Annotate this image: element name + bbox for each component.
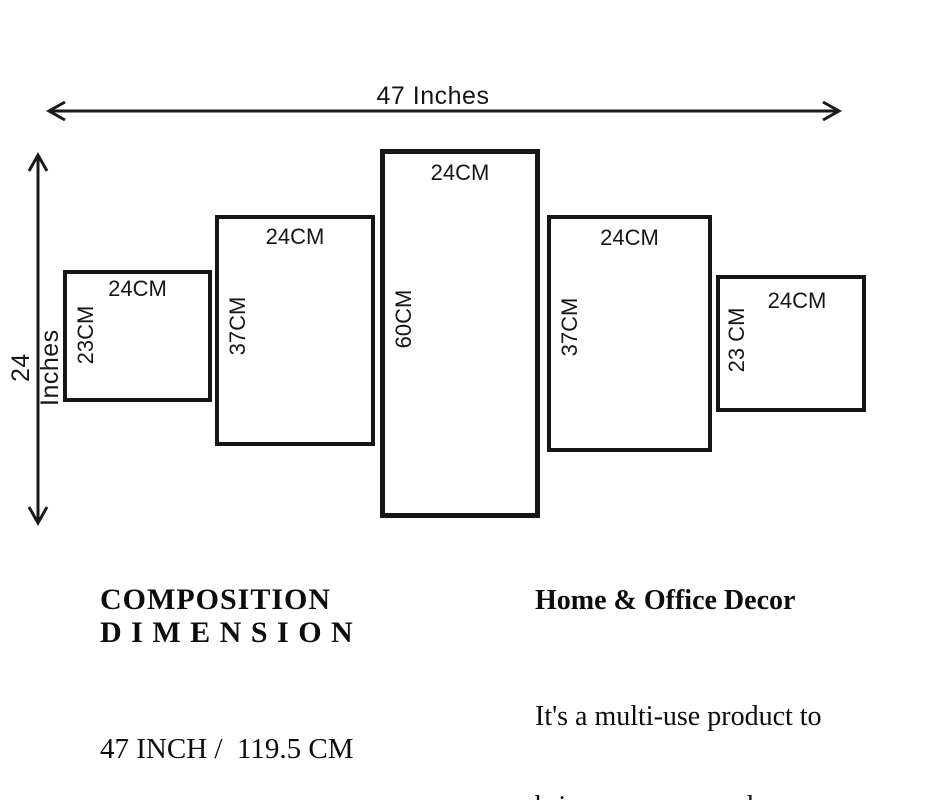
panel-4-width-label: 24CM xyxy=(551,225,708,251)
composition-spec-width: 47 INCH / 119.5 CM xyxy=(100,733,354,765)
product-dimension-diagram: 47 Inches 24 Inches 24CM 23CM 24CM 37CM … xyxy=(0,0,945,800)
panel-2-width-label: 24CM xyxy=(219,224,371,250)
decor-title: Home & Office Decor xyxy=(535,586,822,616)
decor-description-line1: It's a multi-use product to xyxy=(535,702,822,732)
panel-1-height-label: 23CM xyxy=(73,305,99,364)
home-office-decor-block: Home & Office Decor It's a multi-use pro… xyxy=(535,586,822,800)
panel-5: 24CM 23 CM xyxy=(716,275,866,412)
decor-description-line2: bring your personal or xyxy=(535,792,822,800)
panel-3-width-label: 24CM xyxy=(385,160,535,186)
panel-4: 24CM 37CM xyxy=(547,215,712,452)
panel-5-height-label: 23 CM xyxy=(724,307,750,372)
composition-title-line1: COMPOSITION xyxy=(100,583,354,616)
panel-5-width-label: 24CM xyxy=(732,288,862,314)
height-arrow xyxy=(24,148,52,530)
composition-dimension-block: COMPOSITION D I M E N S I O N 47 INCH / … xyxy=(100,583,354,800)
width-arrow xyxy=(42,97,846,125)
panel-2: 24CM 37CM xyxy=(215,215,375,446)
panel-1-width-label: 24CM xyxy=(67,276,208,302)
panel-3-center: 24CM 60CM xyxy=(380,149,540,518)
panel-2-height-label: 37CM xyxy=(225,297,251,356)
panel-3-height-label: 60CM xyxy=(391,290,417,349)
composition-title-line2: D I M E N S I O N xyxy=(100,616,354,649)
panel-4-height-label: 37CM xyxy=(557,297,583,356)
panel-1: 24CM 23CM xyxy=(63,270,212,402)
